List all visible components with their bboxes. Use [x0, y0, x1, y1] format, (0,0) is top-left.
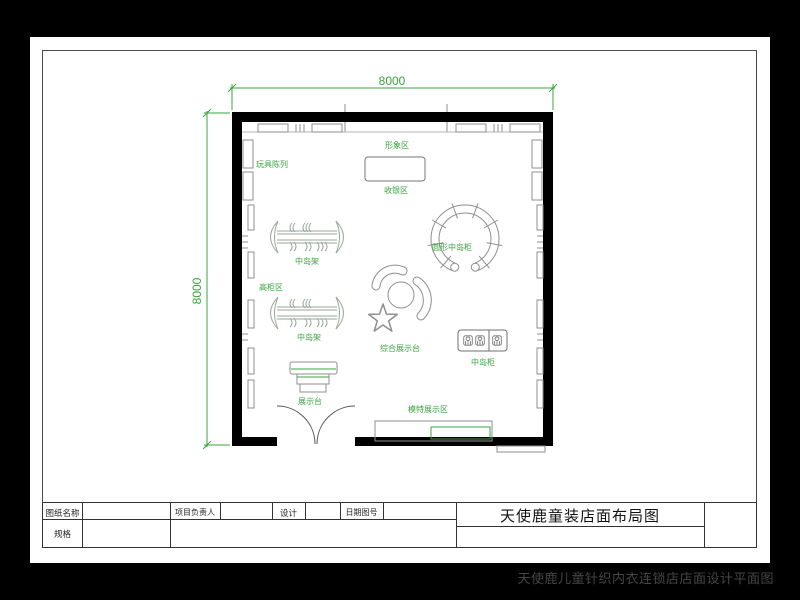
title-block-line: [704, 503, 705, 547]
composite-display: [369, 269, 428, 331]
date-drawing-no-label: 日期图号: [340, 507, 383, 518]
title-block-line: [456, 526, 704, 527]
label-display-stand: 展示台: [298, 396, 322, 406]
title-block-line: [220, 503, 221, 519]
display-stand: [290, 362, 337, 392]
footer-caption: 天使鹿儿童针织内衣连锁店店面设计平面图: [517, 568, 774, 587]
label-circular-island-cabinet: 圆形中岛柜: [432, 242, 472, 252]
label-toy-display: 玩具陈列: [256, 159, 288, 169]
cashier-desk: [365, 157, 425, 181]
title-block-line: [43, 519, 456, 520]
dimension-left: 8000: [190, 277, 204, 304]
drawing-name-label: 图纸名称: [43, 507, 82, 519]
label-island-cabinet: 中岛柜: [471, 357, 495, 367]
drawing-canvas: 8000 8000: [0, 0, 800, 600]
label-cashier-area: 收银区: [384, 185, 408, 195]
dimension-top: 8000: [379, 74, 406, 88]
dimension-lines: [203, 84, 557, 449]
label-island-rack-2: 中岛架: [297, 332, 321, 342]
floor-plan: 8000 8000: [180, 57, 580, 467]
star-shape: [369, 304, 398, 331]
entrance-double-door: [277, 406, 355, 444]
island-cabinet: [458, 330, 507, 351]
label-tall-cabinet-area: 高柜区: [259, 282, 283, 292]
design-label: 设计: [272, 507, 305, 519]
project-leader-label: 项目负责人: [170, 507, 220, 518]
left-wall-cabinets: [242, 140, 254, 408]
label-model-display-area: 模特展示区: [408, 404, 448, 414]
title-block: 图纸名称 项目负责人 设计 日期图号 规格 天使鹿童装店面布局图: [42, 502, 757, 548]
label-island-rack-1: 中岛架: [295, 256, 319, 266]
spec-label: 规格: [43, 528, 82, 540]
top-wall-shelves: [242, 124, 543, 132]
island-rack-2: [271, 297, 344, 329]
island-rack-1: [271, 221, 344, 253]
title-block-line: [383, 503, 384, 519]
title-block-line: [82, 503, 83, 547]
right-wall-cabinets: [532, 140, 543, 408]
model-display-window: [375, 421, 545, 452]
drawing-title: 天使鹿童装店面布局图: [456, 505, 704, 526]
paper-sheet: 8000 8000: [30, 37, 770, 563]
label-image-area: 形象区: [385, 140, 409, 150]
title-block-line: [305, 503, 306, 519]
label-composite-display: 综合展示台: [380, 343, 420, 353]
